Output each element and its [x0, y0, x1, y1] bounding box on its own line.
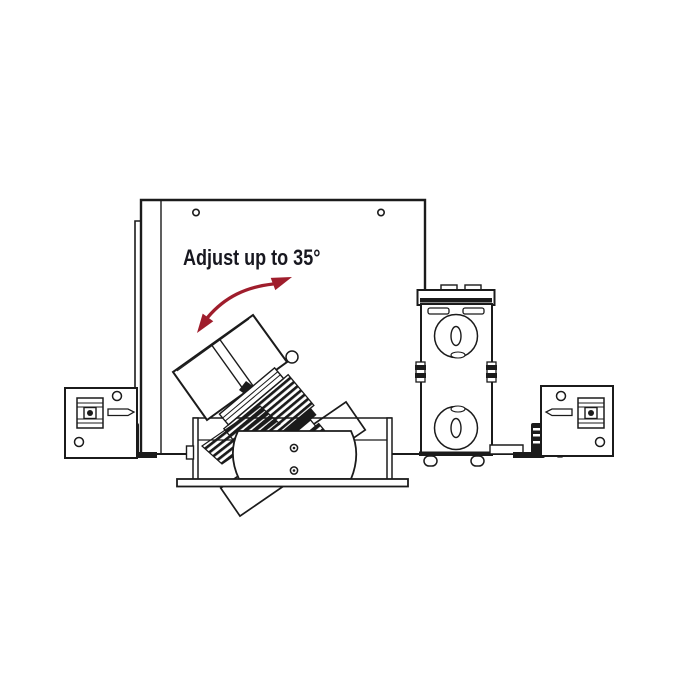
adjust-annotation: Adjust up to 35° [183, 246, 320, 270]
bracket-hole [596, 438, 605, 447]
housing-screw-hole [378, 209, 384, 215]
trim-flange [177, 479, 408, 487]
bracket-slot-bar [546, 409, 572, 416]
right-mounting-bracket [541, 386, 613, 456]
box-foot [424, 456, 437, 466]
diagram-canvas: Adjust up to 35° [0, 0, 700, 700]
bracket-hole [113, 392, 122, 401]
module-hook-tab [286, 351, 298, 363]
bracket-hole [75, 438, 84, 447]
reflector-can [233, 431, 356, 479]
box-foot [471, 456, 484, 466]
junction-box [415, 285, 523, 466]
left-mounting-bracket [65, 388, 137, 458]
bracket-hole [557, 392, 566, 401]
bracket-slot-bar [108, 409, 134, 416]
junction-box-lid [418, 290, 495, 305]
housing-screw-hole [193, 209, 199, 215]
frame-clip [187, 446, 194, 459]
recessed-light-diagram: Adjust up to 35° [0, 0, 700, 700]
